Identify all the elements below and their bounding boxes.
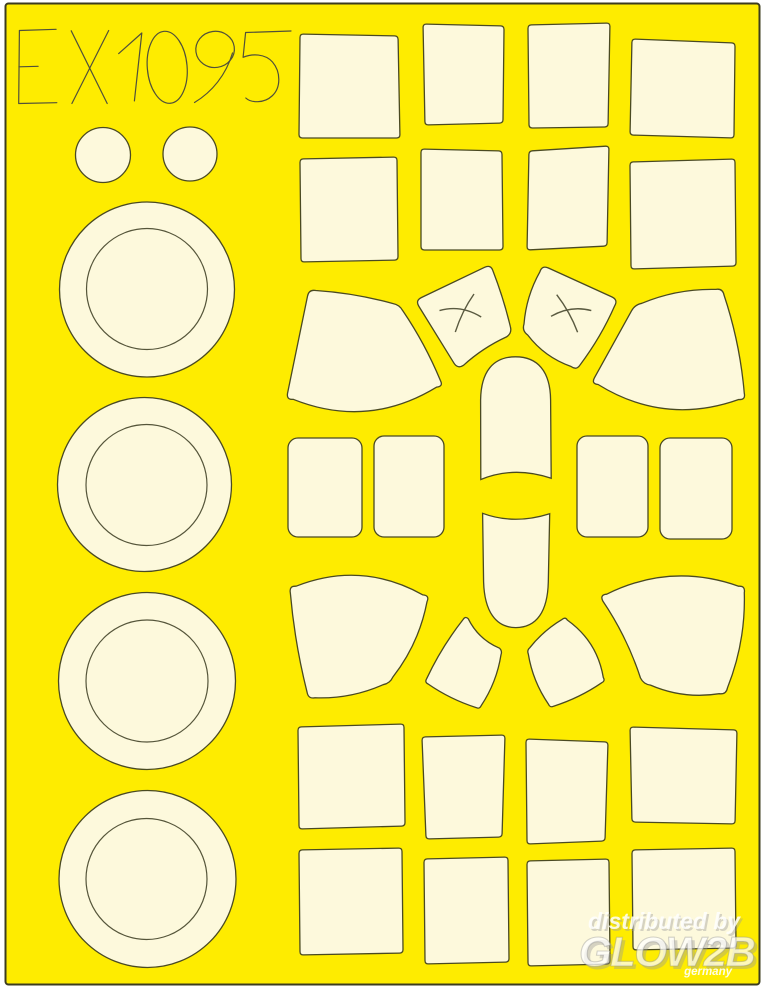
svg-text:germany: germany (683, 966, 733, 978)
